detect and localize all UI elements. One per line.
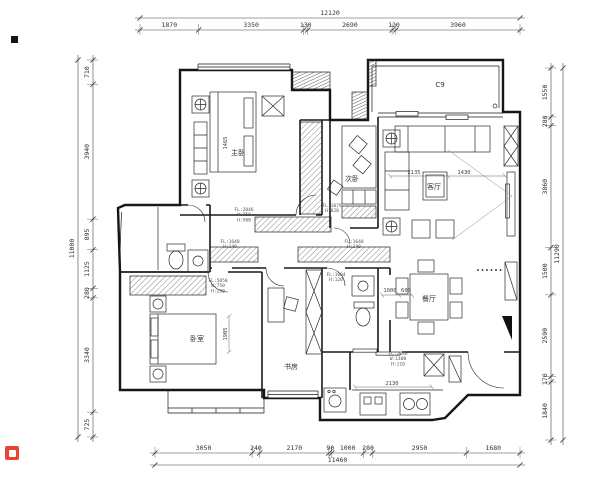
svg-text:280: 280 <box>362 444 374 452</box>
svg-text:725: 725 <box>83 419 91 431</box>
svg-text:主卧: 主卧 <box>231 148 245 157</box>
nightstand-lamps <box>192 96 209 197</box>
svg-text:240: 240 <box>250 444 262 452</box>
svg-text:11000: 11000 <box>68 239 76 259</box>
svg-text:3050: 3050 <box>196 444 212 452</box>
door-arc-study <box>266 268 284 286</box>
svg-text:2130: 2130 <box>385 381 398 387</box>
entry-dots <box>477 269 501 271</box>
watermark-glyph <box>9 450 16 457</box>
watermark-logo <box>5 446 19 460</box>
master-bed <box>210 92 256 172</box>
svg-text:客厅: 客厅 <box>427 182 441 191</box>
svg-text:H:140: H:140 <box>223 244 237 250</box>
entry-door-leaf <box>502 316 512 340</box>
svg-text:1870: 1870 <box>161 21 177 29</box>
floor-plan-page: 1870335013026901203960121203050240217090… <box>0 0 600 480</box>
svg-text:170: 170 <box>541 373 549 385</box>
svg-text:11290: 11290 <box>553 244 561 264</box>
svg-text:280: 280 <box>541 115 549 127</box>
dining-cabinet <box>505 262 517 300</box>
svg-text:3960: 3960 <box>450 21 466 29</box>
svg-text:1465: 1465 <box>223 136 229 149</box>
svg-text:1500: 1500 <box>541 263 549 279</box>
svg-text:120: 120 <box>388 21 400 29</box>
svg-text:3350: 3350 <box>243 21 259 29</box>
floor-plan-drawing: 1870335013026901203960121203050240217090… <box>0 0 600 480</box>
svg-text:FL:2046: FL:2046 <box>234 207 254 213</box>
svg-text:130: 130 <box>300 21 312 29</box>
entry-door-arc <box>468 352 504 388</box>
svg-text:H:120: H:120 <box>329 277 343 283</box>
svg-text:12120: 12120 <box>320 9 340 17</box>
svg-text:FL:1640: FL:1640 <box>220 239 240 245</box>
corner-mark <box>11 36 18 43</box>
svg-text:2135: 2135 <box>407 170 420 176</box>
svg-text:3940: 3940 <box>83 144 91 160</box>
study-desk <box>268 270 322 354</box>
svg-text:1680: 1680 <box>485 444 501 452</box>
cabinet-x <box>262 96 284 116</box>
svg-text:1550: 1550 <box>541 85 549 101</box>
svg-text:FL:1004: FL:1004 <box>326 272 346 278</box>
balcony-drain <box>493 104 497 108</box>
single-bed <box>327 126 376 204</box>
svg-text:H:110: H:110 <box>391 361 405 367</box>
svg-text:FL:1640: FL:1640 <box>344 239 364 245</box>
svg-text:2590: 2590 <box>541 328 549 344</box>
svg-text:W:750: W:750 <box>211 283 225 289</box>
svg-text:H:500: H:500 <box>237 217 251 223</box>
washing-machine <box>324 388 346 412</box>
bedroom-bench <box>194 122 207 174</box>
svg-text:1905: 1905 <box>223 327 229 340</box>
svg-text:3860: 3860 <box>541 179 549 195</box>
svg-text:餐厅: 餐厅 <box>422 294 436 303</box>
tv-cabinet <box>504 126 518 236</box>
svg-text:11460: 11460 <box>328 456 348 464</box>
svg-text:次卧: 次卧 <box>345 174 359 183</box>
svg-text:280: 280 <box>83 287 91 299</box>
svg-text:C9: C9 <box>435 81 444 89</box>
svg-text:1000: 1000 <box>383 288 396 294</box>
svg-text:710: 710 <box>83 66 91 78</box>
svg-text:600: 600 <box>401 288 411 294</box>
svg-text:1000: 1000 <box>340 444 356 452</box>
svg-text:书房: 书房 <box>284 362 298 371</box>
svg-text:H:250: H:250 <box>211 288 225 294</box>
sofa <box>385 126 490 210</box>
svg-text:2950: 2950 <box>412 444 428 452</box>
svg-text:90: 90 <box>326 444 334 452</box>
svg-text:H:140: H:140 <box>347 244 361 250</box>
svg-text:H:820: H:820 <box>325 208 339 214</box>
svg-text:FL:5050: FL:5050 <box>208 278 228 284</box>
svg-text:FL:2046: FL:2046 <box>388 351 408 357</box>
ottomans <box>412 220 454 238</box>
bedroom2-bed <box>150 296 216 382</box>
svg-text:1125: 1125 <box>83 261 91 277</box>
svg-text:3340: 3340 <box>83 347 91 363</box>
svg-text:1430: 1430 <box>457 170 470 176</box>
svg-text:2170: 2170 <box>287 444 303 452</box>
svg-text:2690: 2690 <box>342 21 358 29</box>
plant-pots <box>383 130 400 235</box>
tv-sightlines <box>448 150 512 240</box>
svg-text:1840: 1840 <box>541 403 549 419</box>
svg-text:卧室: 卧室 <box>190 334 204 343</box>
svg-text:895: 895 <box>83 229 91 241</box>
outer-walls <box>118 60 520 420</box>
foyer-cabinet <box>449 356 461 382</box>
svg-text:FL:1879: FL:1879 <box>322 203 342 209</box>
svg-text:W:1400: W:1400 <box>390 356 407 362</box>
svg-text:W:750: W:750 <box>237 212 251 218</box>
